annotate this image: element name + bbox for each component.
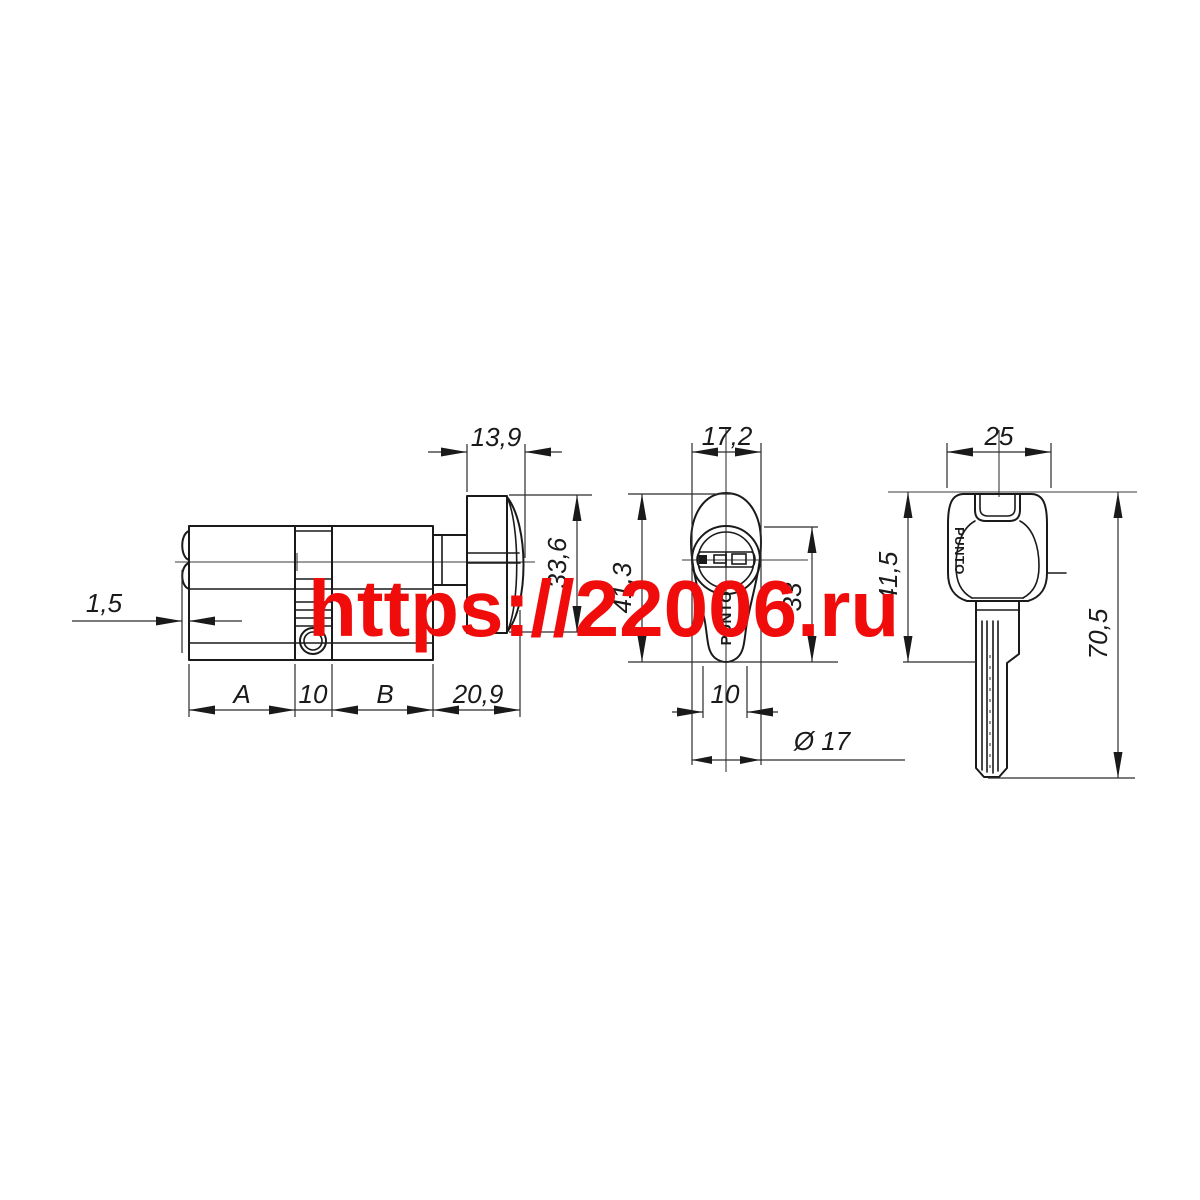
dim-key-length-value: 70,5 [1083, 608, 1113, 659]
watermark-text: https://22006.ru [308, 564, 899, 653]
dim-plug-diameter-value: Ø 17 [793, 726, 852, 756]
cylinder-face-cap [182, 531, 189, 589]
dim-key-length: 70,5 [1083, 492, 1123, 778]
dim-face-protrusion: 1,5 [72, 570, 242, 653]
drawing-canvas: 13,9 1,5 33,6 A 10 [0, 0, 1200, 1200]
dim-head-width-value: 25 [984, 421, 1014, 451]
dim-profile-width-value: 17,2 [702, 421, 753, 451]
dim-center-value: 10 [299, 679, 328, 709]
dim-turn-length-value: 20,9 [452, 679, 504, 709]
dim-b-value: B [376, 679, 393, 709]
dim-plug-diameter: Ø 17 [692, 726, 905, 764]
brand-text-key-head: PUNTO [952, 527, 967, 575]
dim-turn-width: 13,9 [428, 422, 562, 558]
key-blade [976, 601, 1019, 777]
dim-a-value: A [231, 679, 250, 709]
dim-turn-width-value: 13,9 [471, 422, 522, 452]
dim-foot-width: 10 [672, 666, 778, 718]
key-head: PUNTO [948, 494, 1066, 601]
dim-face-protrusion-value: 1,5 [86, 588, 123, 618]
dim-foot-width-value: 10 [711, 679, 740, 709]
technical-drawing: 13,9 1,5 33,6 A 10 [0, 0, 1200, 1200]
key-view: PUNTO 25 41,5 [873, 421, 1137, 778]
